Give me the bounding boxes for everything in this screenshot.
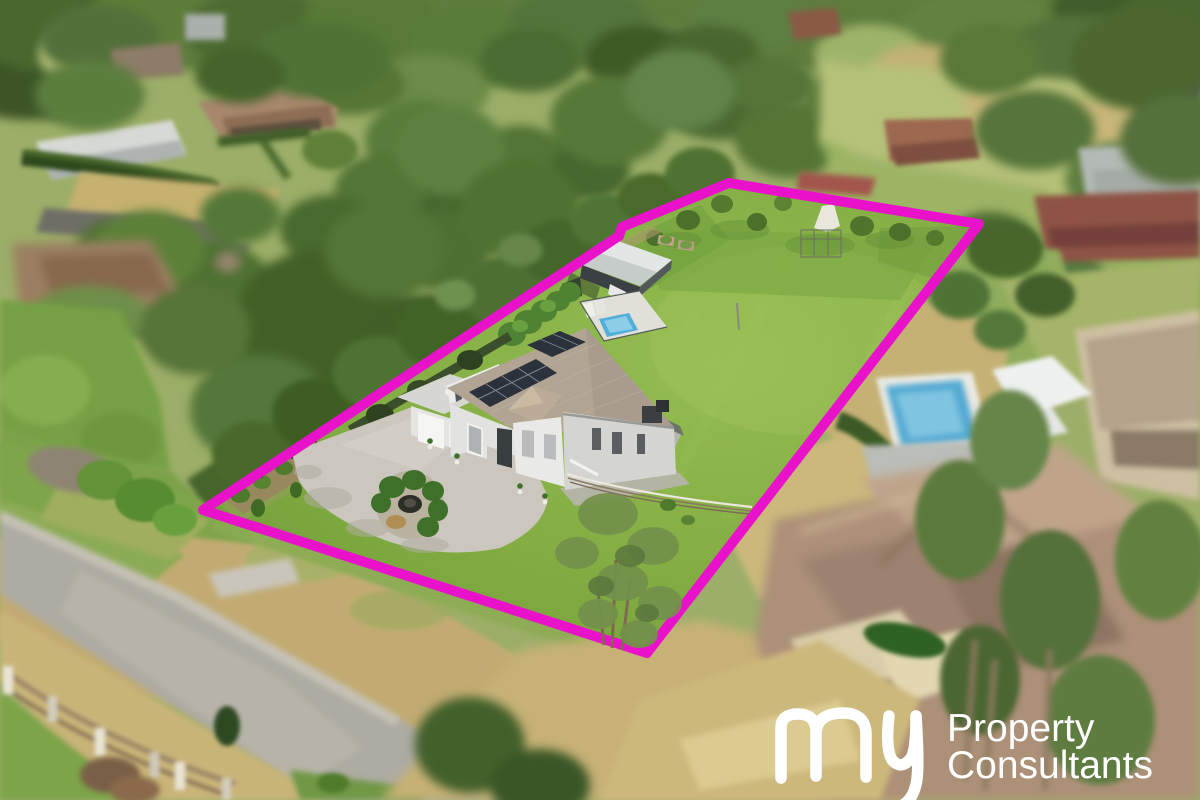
svg-text:Consultants: Consultants [947, 744, 1153, 787]
